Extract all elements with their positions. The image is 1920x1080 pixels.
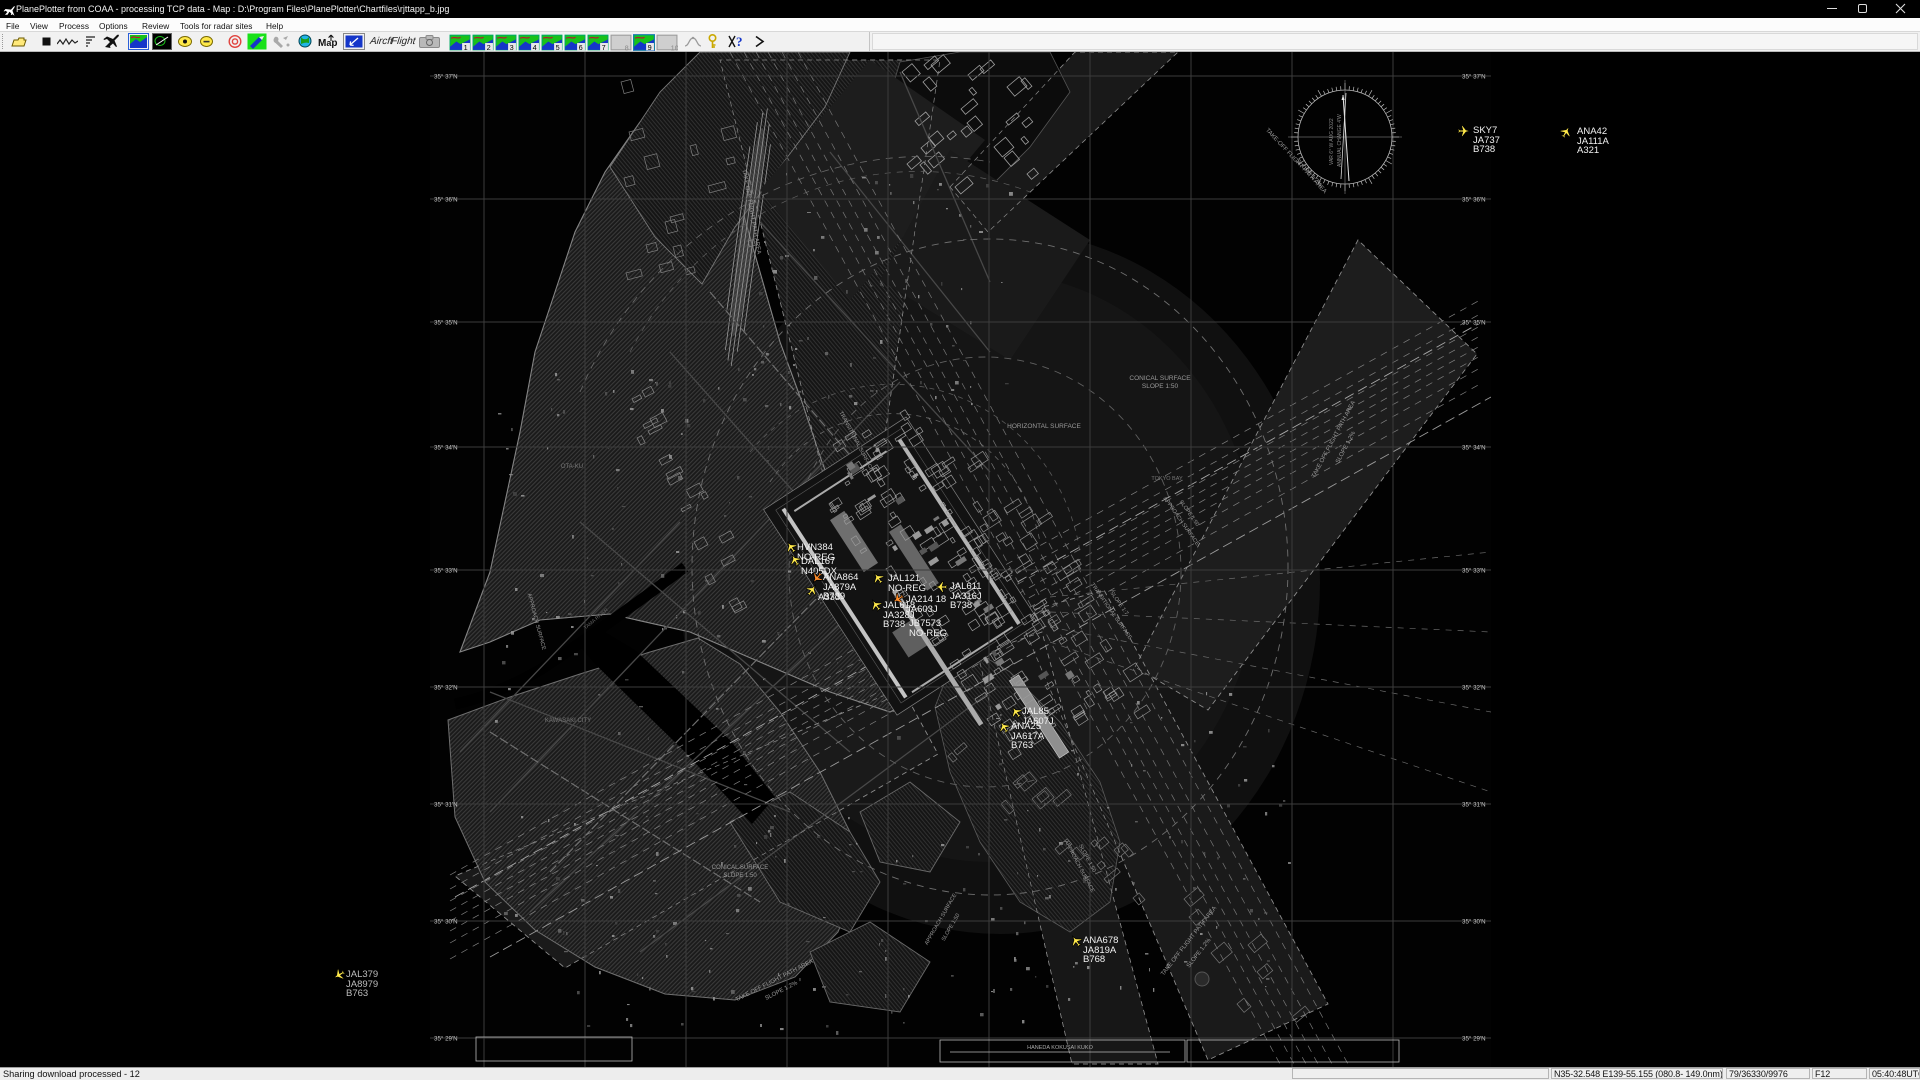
svg-text:35° 30'N: 35° 30'N: [1462, 919, 1486, 926]
svg-text:35° 34'N: 35° 34'N: [1462, 445, 1486, 452]
svg-text:35° 29'N: 35° 29'N: [1462, 1036, 1486, 1043]
svg-text:OTA-KU: OTA-KU: [561, 464, 583, 470]
svg-text:35° 30'N: 35° 30'N: [434, 919, 458, 926]
svg-text:35° 32'N: 35° 32'N: [434, 685, 458, 692]
svg-text:4: 4: [533, 43, 537, 51]
svg-text:35° 32'N: 35° 32'N: [1462, 685, 1486, 692]
svg-text:HORIZONTAL SURFACE: HORIZONTAL SURFACE: [1007, 423, 1081, 430]
svg-text:2: 2: [487, 43, 491, 51]
svg-text:ANNUAL CHANGE 4'W: ANNUAL CHANGE 4'W: [1337, 114, 1343, 167]
svg-text:HANEDA KOKUSAI KUKO: HANEDA KOKUSAI KUKO: [1027, 1045, 1093, 1051]
svg-text:Map: Map: [318, 38, 337, 49]
svg-text:TOKYO BAY: TOKYO BAY: [1151, 476, 1183, 482]
svg-text:CONICAL SURFACE: CONICAL SURFACE: [712, 865, 768, 871]
svg-text:8: 8: [625, 43, 629, 51]
svg-text:35° 35'N: 35° 35'N: [434, 320, 458, 327]
svg-text:9: 9: [648, 43, 652, 51]
svg-text:35° 31'N: 35° 31'N: [434, 802, 458, 809]
svg-text:6: 6: [579, 43, 583, 51]
svg-text:3: 3: [510, 43, 514, 51]
svg-text:35° 33'N: 35° 33'N: [434, 568, 458, 575]
svg-text:35° 36'N: 35° 36'N: [434, 197, 458, 204]
svg-text:SLOPE 1:50: SLOPE 1:50: [723, 873, 757, 879]
svg-text:CONICAL SURFACE: CONICAL SURFACE: [1129, 375, 1191, 382]
svg-text:5: 5: [556, 43, 560, 51]
svg-text:35° 36'N: 35° 36'N: [1462, 197, 1486, 204]
svg-text:35° 33'N: 35° 33'N: [1462, 568, 1486, 575]
svg-text:SLOPE 1:50: SLOPE 1:50: [1142, 383, 1179, 390]
svg-text:35° 29'N: 35° 29'N: [434, 1036, 458, 1043]
svg-text:35° 37'N: 35° 37'N: [1462, 74, 1486, 81]
svg-text:35° 37'N: 35° 37'N: [434, 74, 458, 81]
svg-text:?: ?: [736, 34, 743, 49]
svg-text:1: 1: [464, 43, 468, 51]
svg-text:KAWASAKI CITY: KAWASAKI CITY: [545, 718, 591, 724]
svg-text:10: 10: [671, 43, 678, 51]
svg-text:VAR 6° W AUG 2022: VAR 6° W AUG 2022: [1329, 118, 1335, 165]
svg-text:7: 7: [602, 43, 606, 51]
svg-text:35° 31'N: 35° 31'N: [1462, 802, 1486, 809]
svg-text:35° 35'N: 35° 35'N: [1462, 320, 1486, 327]
svg-text:35° 34'N: 35° 34'N: [434, 445, 458, 452]
